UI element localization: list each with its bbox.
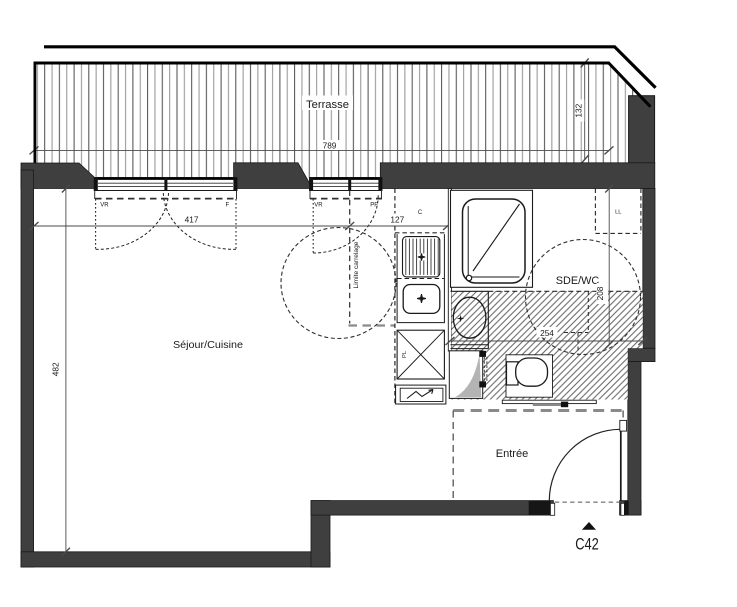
svg-text:VR: VR — [100, 202, 109, 208]
svg-text:Terrasse: Terrasse — [306, 99, 349, 111]
svg-text:482: 482 — [51, 362, 61, 376]
svg-text:Limite carrelage: Limite carrelage — [353, 241, 360, 288]
svg-text:417: 417 — [185, 214, 199, 224]
svg-text:LL: LL — [615, 210, 622, 216]
svg-text:VR: VR — [314, 202, 323, 208]
svg-text:132: 132 — [574, 103, 584, 117]
svg-text:SDE/WC: SDE/WC — [556, 275, 600, 287]
svg-text:C: C — [418, 210, 423, 216]
svg-text:C42: C42 — [575, 536, 599, 554]
svg-text:208: 208 — [595, 286, 605, 300]
svg-text:127: 127 — [390, 214, 404, 224]
svg-text:F: F — [226, 202, 230, 208]
svg-text:Séjour/Cuisine: Séjour/Cuisine — [173, 340, 243, 351]
svg-text:254: 254 — [540, 328, 554, 338]
svg-text:Entrée: Entrée — [496, 448, 529, 460]
svg-text:PL: PL — [402, 350, 408, 358]
svg-text:789: 789 — [323, 141, 337, 151]
